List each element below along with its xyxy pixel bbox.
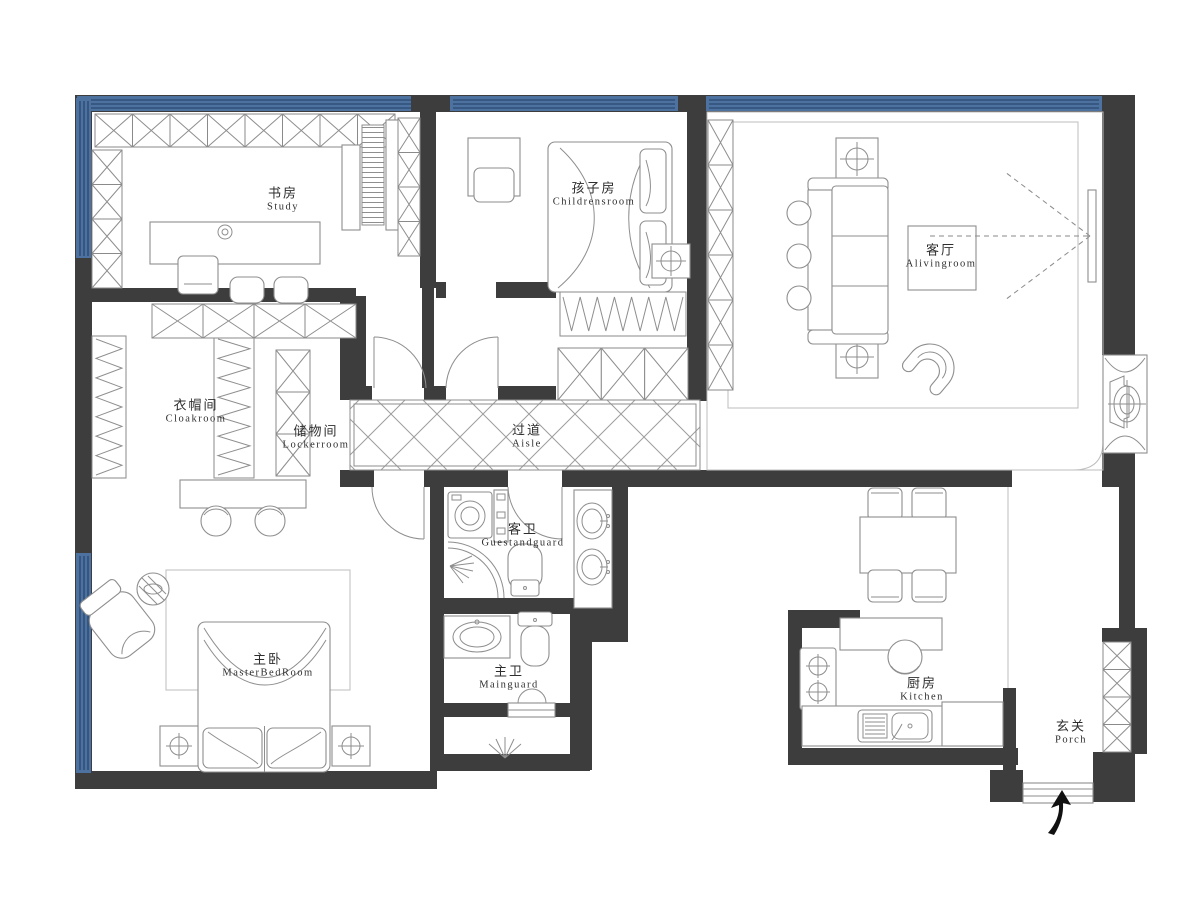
childrens-chair [474,168,514,202]
window-top-right-icon [706,96,1102,111]
nightstand-icon [160,726,198,766]
window-left-master-icon [76,553,91,773]
living-room-outline [707,112,1103,470]
master-bed-icon [198,622,330,772]
shoe-cabinet-icon [1103,642,1131,752]
study-tall-cabinet-icon [398,118,420,256]
fan-coil-unit-icon [1103,355,1147,453]
window-top-middle-icon [450,96,678,111]
kitchen-side-counter [942,702,1003,746]
guest-bathroom-furniture [448,490,612,608]
window-top-left-icon [77,96,411,111]
study-stool [274,277,308,303]
aisle-tile-floor [350,400,700,470]
clothes-rack-icon [560,292,686,336]
cloakroom-x-cabinet-icon [152,304,356,338]
slim-cabinet-icon [494,490,508,542]
guest-toilet-icon [508,544,542,596]
study-desk [150,222,320,264]
hanging-rack-icon [92,336,126,478]
dining-table [860,517,956,573]
hanging-rack-icon [214,336,254,478]
study-stool [230,277,264,303]
kitchen-sink-icon [858,710,932,742]
study-side-cabinet-icon [92,150,122,288]
study-furniture [92,114,420,303]
washing-machine-icon [448,492,492,538]
bookshelf-icon [342,145,360,230]
pillow-icon [640,149,666,213]
childrens-x-cabinet-icon [558,348,688,400]
gas-stove-icon [800,648,836,710]
floor-plan-canvas: 书房 Study 孩子房 Childrensroom 客厅 Alivingroo… [0,0,1200,900]
spray-icon [450,556,474,583]
washbasin-icon [444,616,510,658]
dressing-desk [180,480,306,508]
cloakroom-furniture [92,304,356,478]
side-table-icon [787,201,811,225]
study-office-chair [178,256,218,294]
side-table-icon [787,286,811,310]
childrens-room-furniture [468,138,690,400]
bookshelf-slats-icon [362,125,384,225]
living-wall-cabinet-icon [708,120,733,390]
bar-counter [840,618,942,650]
study-wall-cabinet-icon [95,114,395,147]
sofa-icon [787,178,888,344]
master-door-icon [372,487,424,539]
round-stool [201,506,231,536]
window-left-study-icon [76,98,91,258]
master-bedroom-furniture [75,480,370,772]
childrens-door-icon [446,337,498,388]
main-bathroom-furniture [444,612,552,758]
side-table-icon [787,244,811,268]
nightstand-icon [332,726,370,766]
round-stool [255,506,285,536]
living-room-furniture [707,112,1147,470]
main-toilet-icon [518,612,552,666]
study-door-icon [374,337,426,388]
porch-furniture [1023,642,1131,835]
double-washbasin-icon [574,490,612,608]
dining-furniture [860,487,1008,688]
floor-plan-drawing [0,0,1200,900]
corner-shower-icon [448,542,504,598]
kitchen-furniture [800,618,1003,746]
guest-bath-door-icon [508,487,562,539]
main-bath-sill-icon [508,689,555,717]
armchair-icon [900,334,964,397]
striped-side-table-icon [137,573,169,605]
locker-x-cabinet-icon [276,350,310,476]
